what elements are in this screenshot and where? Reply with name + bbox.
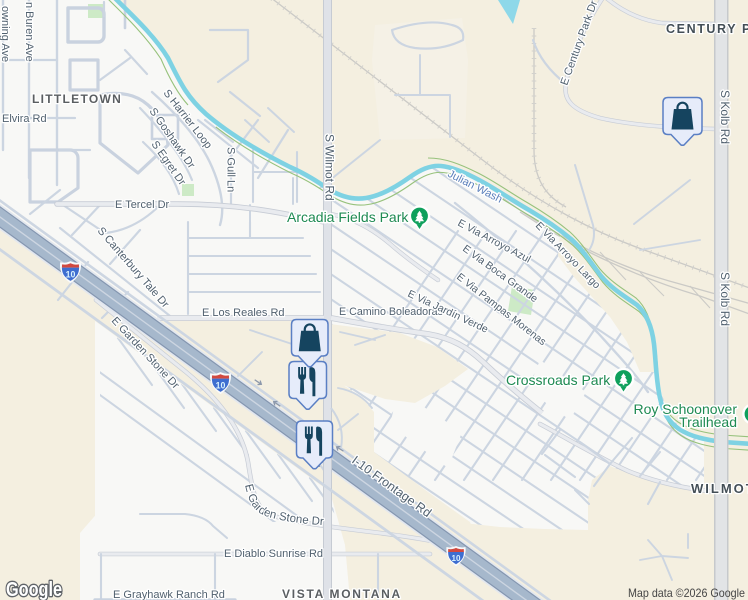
- svg-text:owning Ave: owning Ave: [0, 6, 11, 62]
- svg-text:Arcadia Fields Park: Arcadia Fields Park: [287, 209, 409, 225]
- svg-text:S Kolb Rd: S Kolb Rd: [718, 90, 732, 144]
- svg-text:n Buren Ave: n Buren Ave: [23, 2, 35, 62]
- svg-text:E Los Reales Rd: E Los Reales Rd: [202, 307, 285, 319]
- svg-text:10: 10: [216, 380, 226, 390]
- svg-text:VISTA MONTANA: VISTA MONTANA: [282, 587, 402, 600]
- svg-text:Map data ©2026 Google: Map data ©2026 Google: [628, 586, 745, 600]
- svg-text:10: 10: [66, 269, 76, 279]
- svg-text:Crossroads Park: Crossroads Park: [506, 372, 611, 388]
- svg-text:Google: Google: [6, 579, 62, 600]
- svg-text:S Kolb Rd: S Kolb Rd: [718, 272, 732, 326]
- svg-text:S Wilmot Rd: S Wilmot Rd: [323, 134, 337, 201]
- svg-text:E Grayhawk Ranch Rd: E Grayhawk Ranch Rd: [113, 589, 225, 600]
- svg-text:WILMOT C: WILMOT C: [691, 481, 748, 496]
- svg-text:Trailhead: Trailhead: [679, 414, 737, 430]
- svg-text:E Tercel Dr: E Tercel Dr: [115, 199, 170, 211]
- svg-text:E Diablo Sunrise Rd: E Diablo Sunrise Rd: [224, 548, 323, 560]
- svg-text:10: 10: [452, 554, 461, 563]
- svg-text:Elvira Rd: Elvira Rd: [2, 113, 47, 125]
- svg-text:CENTURY PA: CENTURY PA: [666, 22, 748, 36]
- svg-text:S Gull Ln: S Gull Ln: [225, 147, 237, 192]
- svg-text:LITTLETOWN: LITTLETOWN: [32, 92, 122, 106]
